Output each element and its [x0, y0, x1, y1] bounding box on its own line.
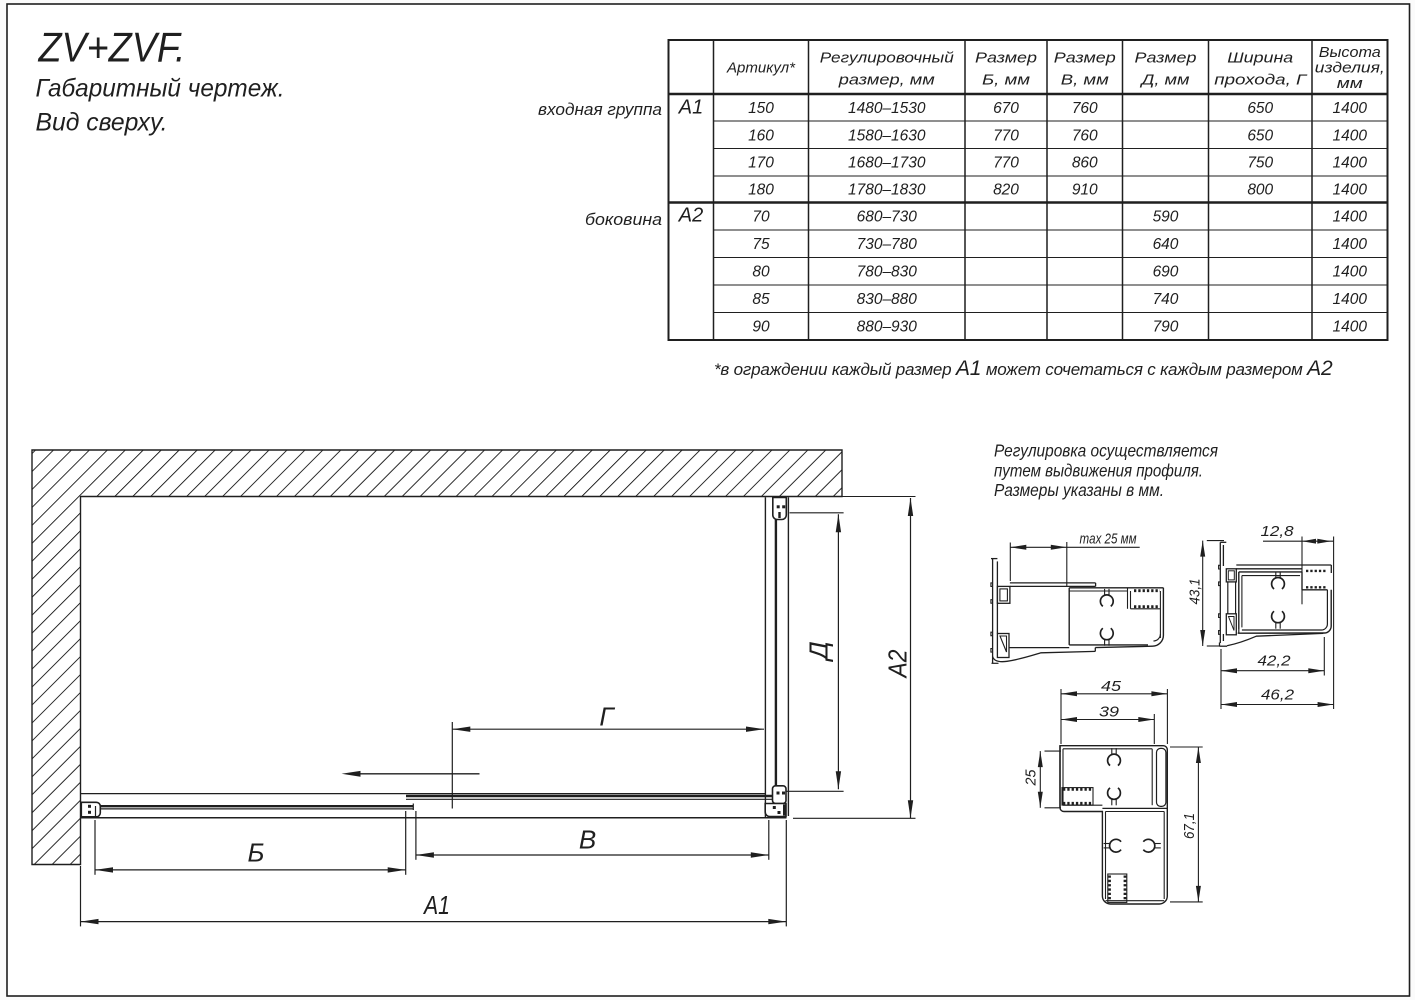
svg-text:650: 650 [1247, 100, 1273, 117]
svg-text:В, мм: В, мм [1061, 73, 1109, 89]
svg-text:860: 860 [1072, 155, 1098, 172]
svg-text:910: 910 [1072, 182, 1098, 199]
svg-text:Б, мм: Б, мм [982, 73, 1030, 89]
svg-text:*в ограждении каждый размер А1: *в ограждении каждый размер А1 может соч… [714, 357, 1333, 380]
svg-text:39: 39 [1099, 704, 1120, 721]
svg-text:150: 150 [748, 100, 774, 117]
svg-text:Габаритный чертеж.: Габаритный чертеж. [36, 75, 285, 103]
svg-text:боковина: боковина [585, 210, 662, 229]
svg-text:1400: 1400 [1333, 128, 1368, 145]
svg-text:180: 180 [748, 182, 774, 199]
svg-text:12,8: 12,8 [1261, 523, 1295, 540]
svg-text:Вид сверху.: Вид сверху. [36, 109, 168, 137]
svg-text:Регулировка осуществляется: Регулировка осуществляется [994, 441, 1218, 461]
svg-text:820: 820 [993, 182, 1019, 199]
svg-text:Размер: Размер [1135, 51, 1197, 67]
svg-text:1580–1630: 1580–1630 [848, 128, 926, 145]
svg-text:Г: Г [599, 702, 615, 732]
svg-text:входная группа: входная группа [538, 100, 662, 119]
svg-text:Размер: Размер [975, 51, 1037, 67]
svg-text:1400: 1400 [1333, 264, 1368, 281]
svg-text:690: 690 [1153, 264, 1179, 281]
svg-text:75: 75 [752, 236, 770, 253]
svg-text:изделия,: изделия, [1315, 61, 1385, 77]
svg-text:760: 760 [1072, 100, 1098, 117]
svg-text:прохода, Г: прохода, Г [1214, 73, 1307, 89]
svg-text:путем выдвижения профиля.: путем выдвижения профиля. [994, 460, 1203, 480]
svg-text:Размеры указаны в мм.: Размеры указаны в мм. [994, 480, 1164, 500]
svg-text:Артикул*: Артикул* [726, 61, 796, 77]
svg-text:80: 80 [752, 264, 770, 281]
svg-text:780–830: 780–830 [857, 264, 918, 281]
svg-text:1680–1730: 1680–1730 [848, 155, 926, 172]
svg-text:А2: А2 [883, 649, 913, 679]
svg-text:Б: Б [248, 838, 265, 868]
svg-text:790: 790 [1153, 319, 1179, 336]
svg-text:В: В [579, 825, 596, 855]
svg-text:1780–1830: 1780–1830 [848, 182, 926, 199]
svg-text:170: 170 [748, 155, 774, 172]
svg-text:мм: мм [1337, 76, 1363, 92]
svg-text:А2: А2 [678, 205, 703, 227]
svg-text:1400: 1400 [1333, 319, 1368, 336]
svg-text:Высота: Высота [1319, 45, 1381, 61]
svg-text:43,1: 43,1 [1187, 579, 1204, 605]
svg-text:А1: А1 [422, 890, 450, 920]
svg-text:45: 45 [1101, 678, 1122, 695]
svg-text:Регулировочный: Регулировочный [820, 51, 954, 67]
svg-text:640: 640 [1153, 236, 1179, 253]
svg-text:1400: 1400 [1333, 100, 1368, 117]
svg-text:25: 25 [1023, 769, 1040, 787]
svg-text:1400: 1400 [1333, 182, 1368, 199]
svg-text:max 25 мм: max 25 мм [1080, 532, 1137, 548]
svg-text:Ширина: Ширина [1227, 51, 1293, 67]
svg-text:размер, мм: размер, мм [837, 73, 934, 89]
svg-text:830–880: 830–880 [857, 291, 918, 308]
svg-text:590: 590 [1153, 209, 1179, 226]
svg-text:1400: 1400 [1333, 236, 1368, 253]
svg-text:1400: 1400 [1333, 155, 1368, 172]
svg-text:670: 670 [993, 100, 1019, 117]
svg-text:750: 750 [1247, 155, 1273, 172]
svg-text:1480–1530: 1480–1530 [848, 100, 926, 117]
svg-text:90: 90 [752, 319, 770, 336]
svg-text:650: 650 [1247, 128, 1273, 145]
svg-text:46,2: 46,2 [1261, 687, 1295, 704]
svg-text:760: 760 [1072, 128, 1098, 145]
svg-text:70: 70 [752, 209, 770, 226]
svg-text:880–930: 880–930 [857, 319, 918, 336]
svg-text:680–730: 680–730 [857, 209, 918, 226]
svg-text:85: 85 [752, 291, 770, 308]
svg-text:160: 160 [748, 128, 774, 145]
svg-text:1400: 1400 [1333, 291, 1368, 308]
svg-text:770: 770 [993, 128, 1019, 145]
svg-text:А1: А1 [678, 97, 703, 119]
svg-text:Д, мм: Д, мм [1139, 73, 1190, 89]
svg-text:800: 800 [1247, 182, 1273, 199]
svg-text:770: 770 [993, 155, 1019, 172]
svg-text:740: 740 [1153, 291, 1179, 308]
svg-text:67,1: 67,1 [1181, 813, 1198, 839]
svg-text:730–780: 730–780 [857, 236, 918, 253]
svg-text:Д: Д [804, 641, 834, 662]
svg-text:Размер: Размер [1054, 51, 1116, 67]
svg-text:1400: 1400 [1333, 209, 1368, 226]
svg-text:42,2: 42,2 [1258, 653, 1292, 670]
svg-text:ZV+ZVF.: ZV+ZVF. [38, 24, 186, 71]
